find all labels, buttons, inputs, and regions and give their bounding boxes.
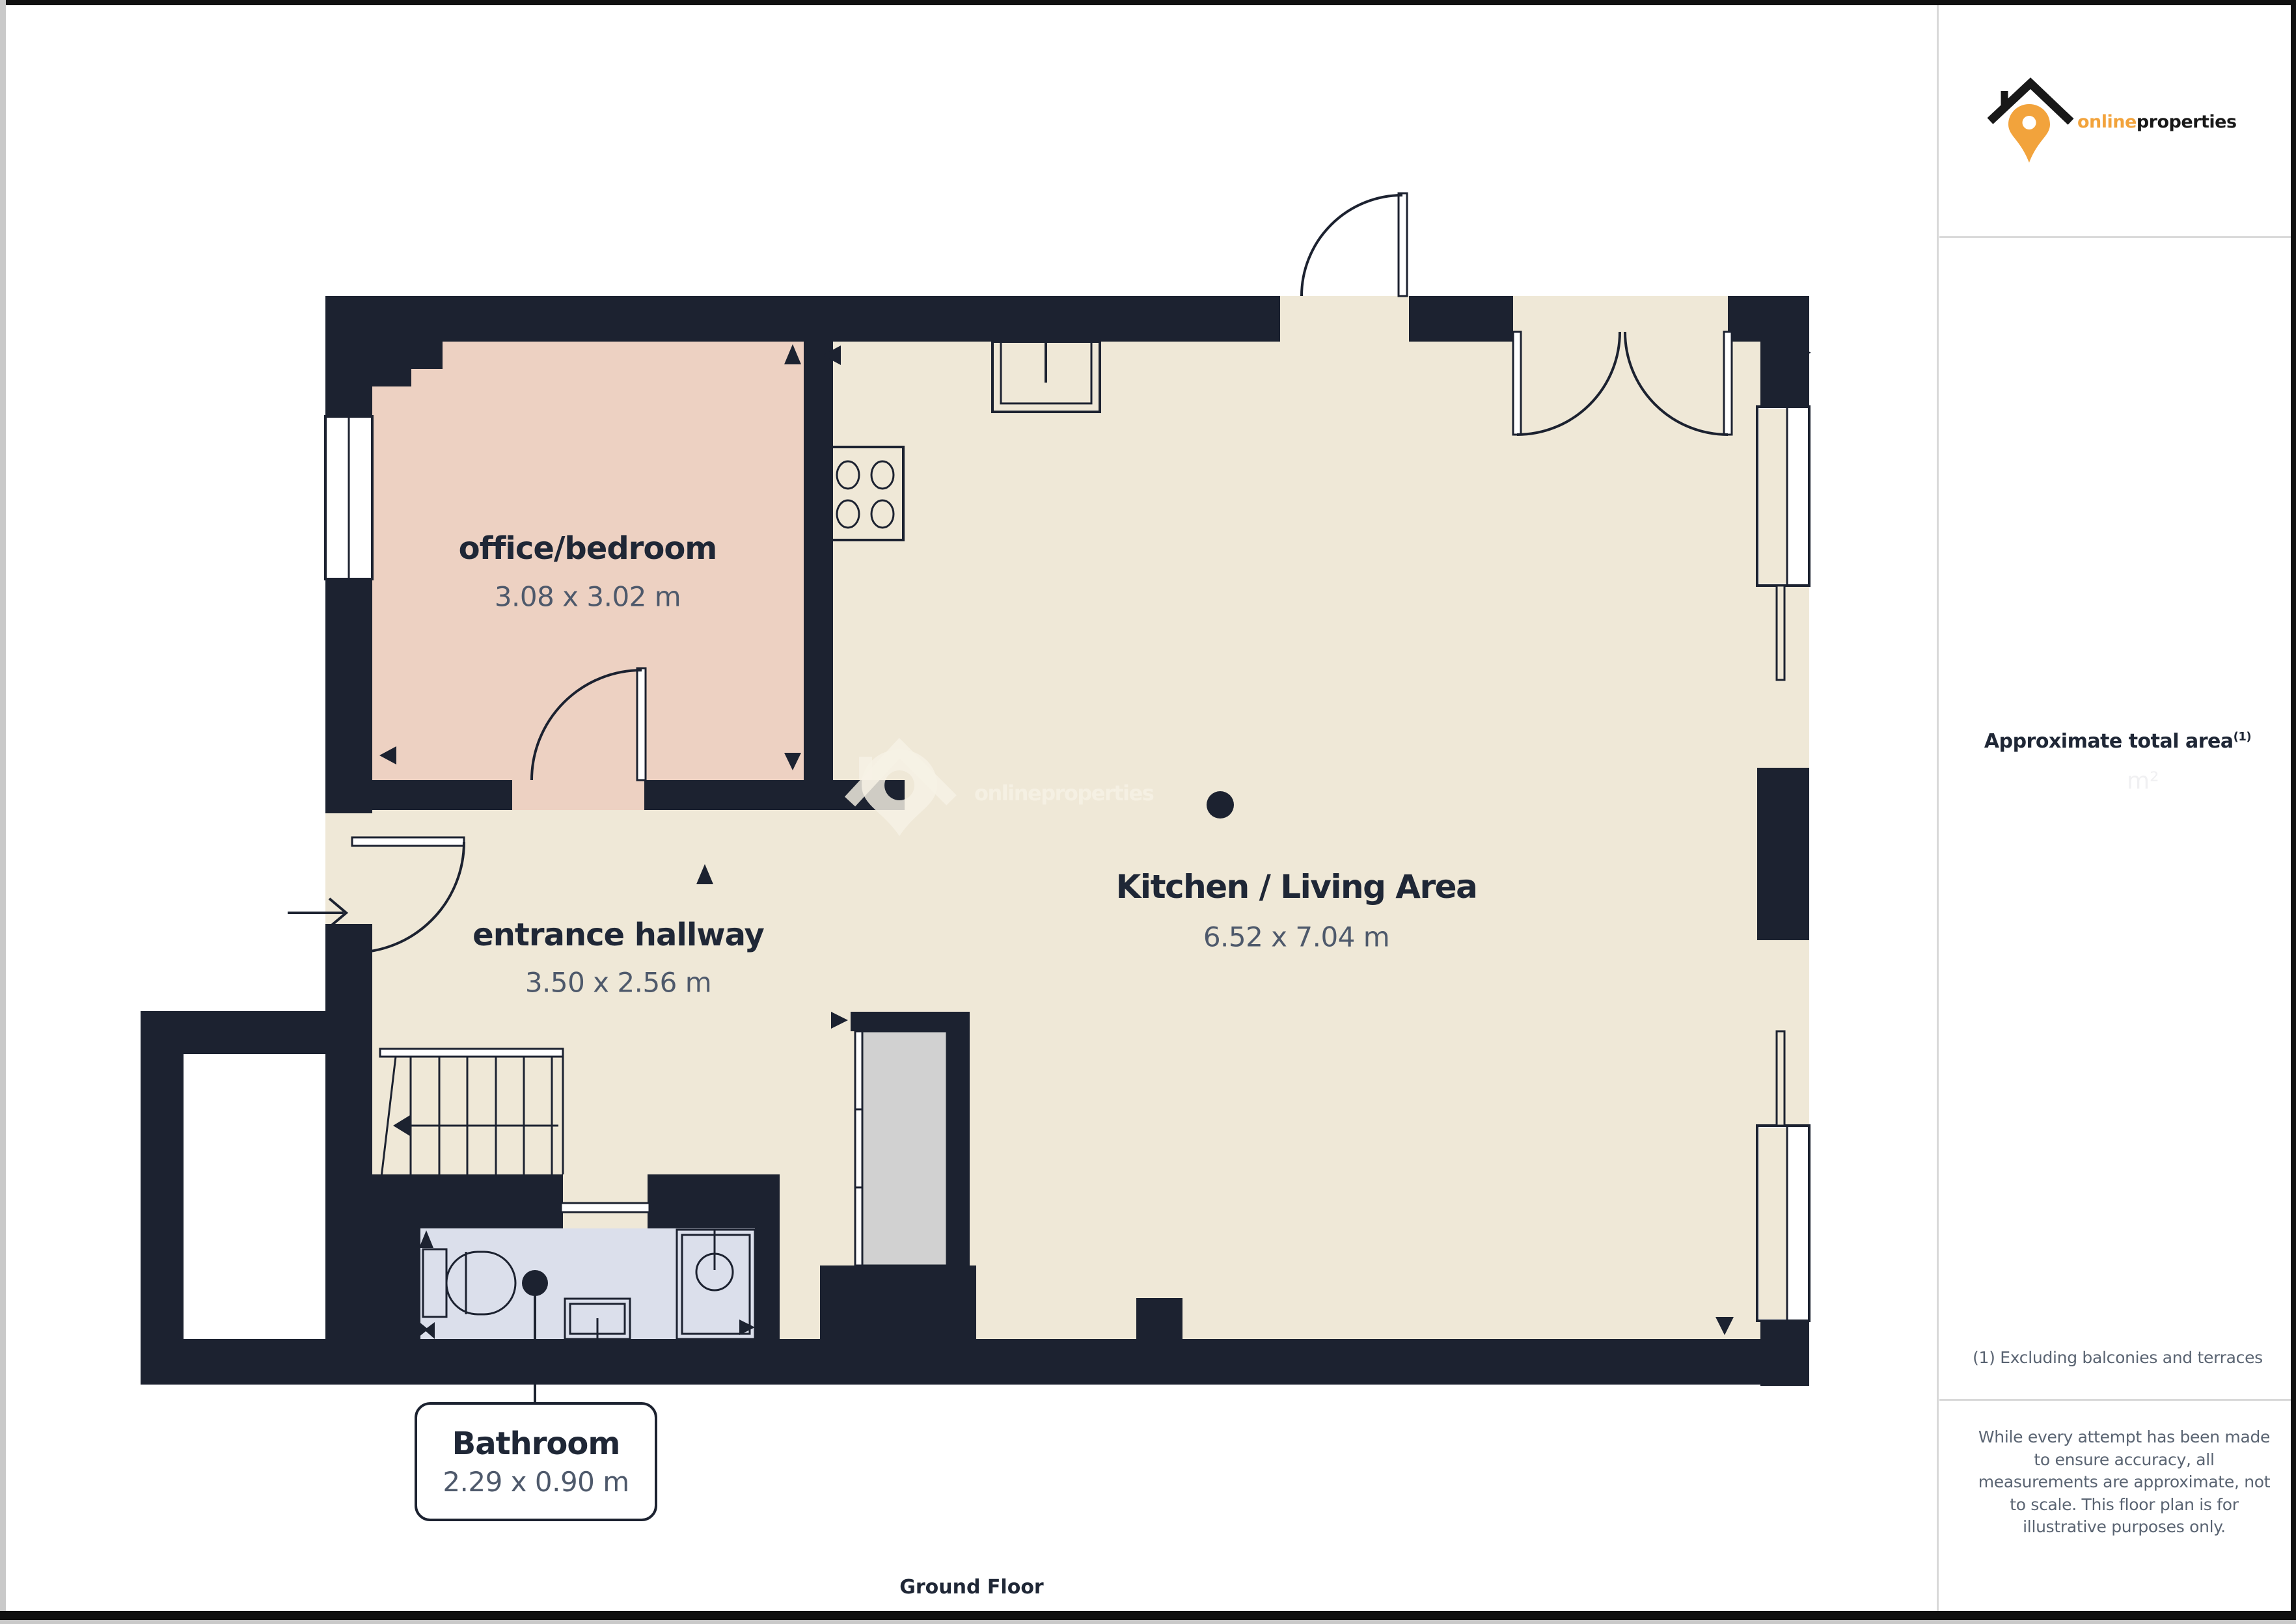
office-bedroom-floor: [372, 332, 804, 810]
frame-bottom-edge: [0, 1620, 2296, 1624]
bathroom-callout: Bathroom 2.29 x 0.90 m: [415, 1402, 657, 1521]
sidebar-section-divider-top: [1939, 236, 2291, 238]
room-label-office-bedroom: office/bedroom: [459, 530, 717, 567]
bathroom-floor: [420, 1228, 755, 1340]
brand-properties: properties: [2137, 112, 2237, 132]
frame-top: [0, 0, 2296, 5]
window-left: [325, 416, 372, 579]
rear-door: [1302, 193, 1407, 296]
sidebar-section-divider-bottom: [1939, 1399, 2291, 1401]
kitchen-label-anchor-dot: [1207, 791, 1234, 819]
room-dims-office-bedroom: 3.08 x 3.02 m: [495, 581, 681, 613]
sidebar-divider: [1937, 5, 1939, 1620]
floor-plan-drawing: [0, 0, 2296, 1624]
brand-logo-icon: [1990, 83, 2071, 163]
cupboard: [855, 1031, 947, 1265]
area-footnote-marker: (1): [2234, 730, 2251, 744]
footnote-text: (1) Excluding balconies and terraces: [1939, 1348, 2296, 1367]
frame-right: [2291, 0, 2296, 1624]
room-dims-kitchen-living: 6.52 x 7.04 m: [1203, 921, 1389, 953]
room-label-bathroom: Bathroom: [452, 1426, 620, 1462]
room-dims-bathroom: 2.29 x 0.90 m: [443, 1466, 629, 1498]
disclaimer-text: While every attempt has been made to ens…: [1975, 1426, 2274, 1539]
area-value-ghost: m²: [2127, 768, 2159, 794]
area-title: Approximate total area(1): [1939, 730, 2296, 753]
brand-online: online: [2077, 112, 2137, 132]
room-label-kitchen-living: Kitchen / Living Area: [1116, 868, 1477, 906]
brand-wordmark: onlineproperties: [2077, 112, 2237, 132]
bathroom-door-threshold: [561, 1203, 649, 1212]
watermark-text: onlineproperties: [974, 781, 1153, 805]
room-dims-entrance-hallway: 3.50 x 2.56 m: [525, 967, 711, 999]
floorplan-page: office/bedroom 3.08 x 3.02 m entrance ha…: [0, 0, 2296, 1624]
floor-caption: Ground Floor: [809, 1576, 1134, 1599]
room-label-entrance-hallway: entrance hallway: [472, 917, 764, 953]
frame-bottom: [0, 1611, 2296, 1620]
frame-left: [0, 0, 6, 1624]
